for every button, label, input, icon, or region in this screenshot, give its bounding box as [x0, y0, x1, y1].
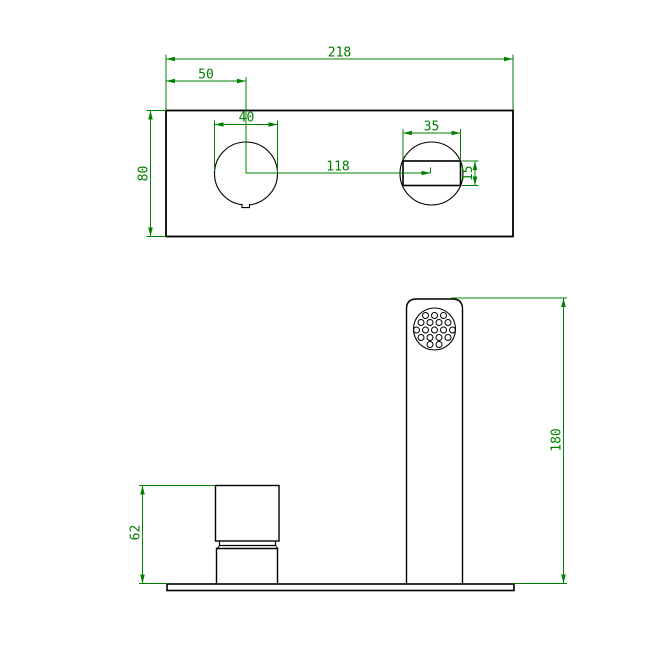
top-view: 218 50 40 118 80 — [137, 46, 514, 237]
dim-plate-width-label: 218 — [328, 46, 351, 61]
handle-hole-notch — [242, 204, 250, 208]
dim-handle-height-label: 62 — [129, 525, 144, 541]
dim-handle-height: 62 — [129, 486, 216, 584]
dim-spout-height-label: 180 — [550, 428, 565, 451]
front-view: 62 180 — [129, 298, 568, 591]
drawing-canvas: 218 50 40 118 80 — [0, 0, 668, 668]
dim-handle-offset-label: 50 — [198, 68, 214, 83]
dim-spout-slot-height: 15 — [461, 161, 479, 186]
faucet-technical-drawing: 218 50 40 118 80 — [0, 0, 668, 668]
spout-outline — [407, 299, 463, 584]
dim-plate-width: 218 — [166, 46, 513, 111]
dim-plate-height-label: 80 — [137, 166, 152, 182]
dim-hole-spacing-label: 118 — [326, 160, 349, 175]
handle-body — [216, 486, 280, 542]
dim-spout-slot-height-label: 15 — [461, 165, 476, 181]
dim-spout-height: 180 — [451, 298, 567, 584]
base-plate — [167, 584, 514, 591]
dim-handle-hole-diameter-label: 40 — [239, 111, 255, 126]
dim-spout-hole-width: 35 — [403, 120, 461, 160]
dim-handle-offset: 50 — [166, 68, 246, 174]
handle-base — [217, 549, 278, 585]
dim-spout-hole-width-label: 35 — [424, 120, 440, 135]
dim-plate-height: 80 — [137, 111, 168, 237]
